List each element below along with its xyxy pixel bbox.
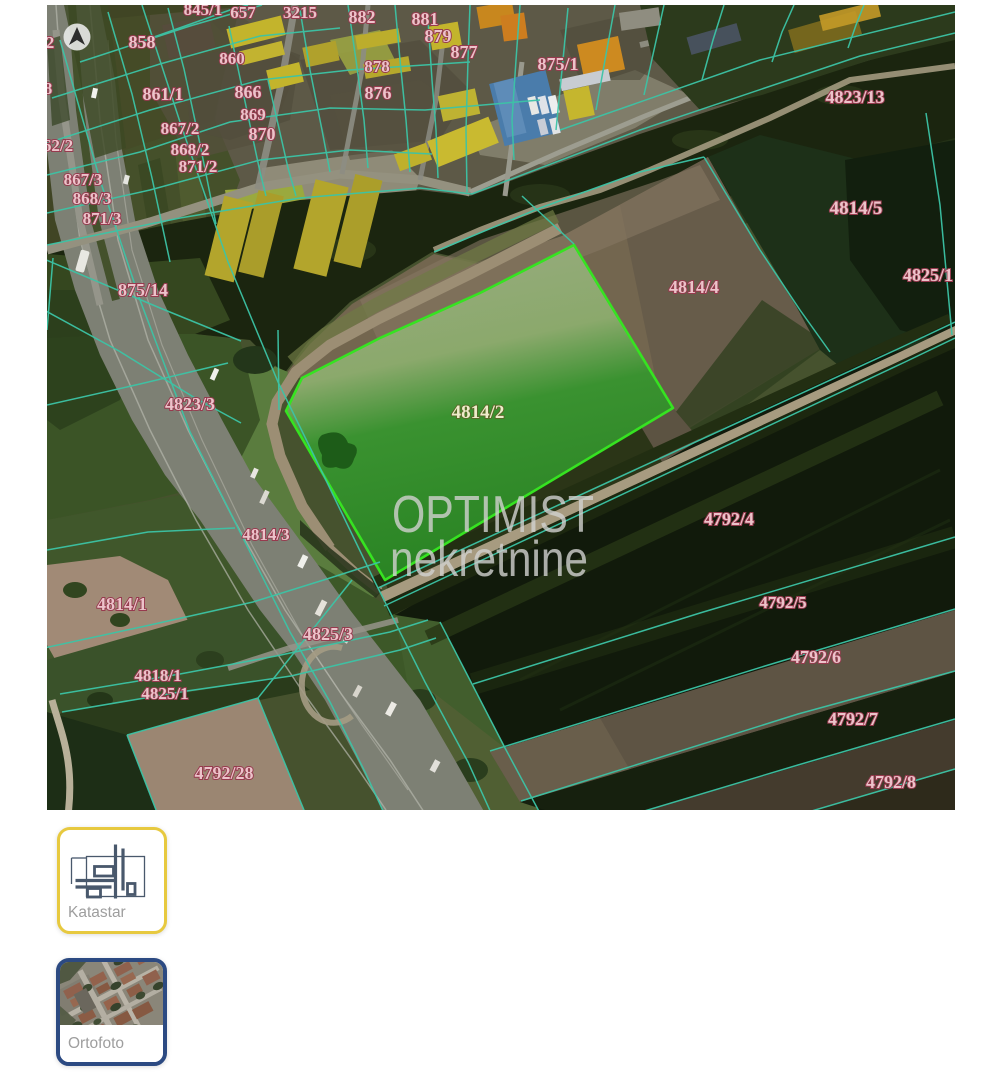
svg-text:867/2: 867/2: [161, 119, 200, 138]
svg-text:871/2: 871/2: [179, 157, 218, 176]
svg-text:860: 860: [219, 49, 245, 68]
svg-text:3215: 3215: [283, 5, 317, 22]
svg-text:4818/1: 4818/1: [134, 666, 181, 685]
svg-text:4792/8: 4792/8: [866, 772, 916, 792]
svg-text:877: 877: [451, 42, 478, 62]
svg-text:4825/1: 4825/1: [141, 684, 188, 703]
svg-text:845/1: 845/1: [184, 5, 223, 19]
svg-text:nekretnine: nekretnine: [390, 531, 588, 587]
svg-text:875/14: 875/14: [118, 280, 168, 300]
svg-text:4814/1: 4814/1: [97, 594, 147, 614]
svg-text:4792/7: 4792/7: [828, 709, 878, 729]
svg-text:871/3: 871/3: [83, 209, 122, 228]
svg-text:870: 870: [249, 124, 276, 144]
svg-text:876: 876: [365, 83, 392, 103]
svg-text:878: 878: [364, 57, 390, 76]
svg-text:4825/1: 4825/1: [903, 265, 953, 285]
svg-text:4814/5: 4814/5: [830, 198, 883, 219]
svg-text:4792/5: 4792/5: [759, 593, 806, 612]
svg-text:879: 879: [425, 26, 452, 46]
svg-text:657: 657: [230, 5, 256, 22]
svg-text:869: 869: [240, 105, 266, 124]
svg-text:882: 882: [349, 7, 376, 27]
svg-text:8: 8: [47, 79, 52, 98]
svg-text:4814/3: 4814/3: [242, 525, 289, 544]
svg-text:4792/4: 4792/4: [704, 509, 754, 529]
svg-text:866: 866: [235, 82, 262, 102]
svg-text:2: 2: [47, 33, 54, 52]
svg-text:868/3: 868/3: [73, 189, 112, 208]
svg-text:867/3: 867/3: [64, 170, 103, 189]
svg-text:4823/13: 4823/13: [825, 87, 884, 107]
svg-text:4792/28: 4792/28: [194, 763, 253, 783]
svg-text:4814/4: 4814/4: [669, 277, 719, 297]
svg-text:875/1: 875/1: [537, 54, 578, 74]
svg-text:858: 858: [129, 32, 156, 52]
svg-text:861/1: 861/1: [142, 84, 183, 104]
svg-text:4814/2: 4814/2: [452, 402, 505, 423]
svg-text:62/2: 62/2: [47, 136, 73, 155]
svg-text:4792/6: 4792/6: [791, 647, 841, 667]
svg-text:4825/3: 4825/3: [303, 624, 353, 644]
svg-text:4823/3: 4823/3: [165, 394, 215, 414]
